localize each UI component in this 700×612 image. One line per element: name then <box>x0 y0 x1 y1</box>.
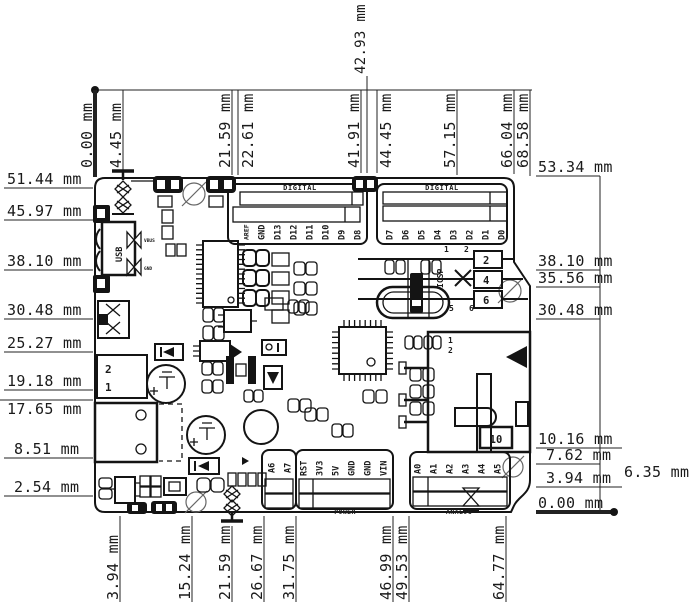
pin-a7: A7 <box>284 463 294 473</box>
round-capacitor <box>244 410 278 444</box>
pin-d3: D3 <box>450 230 460 240</box>
pin-5v: 5V <box>332 466 342 476</box>
dim-left-1: 45.97 mm <box>7 202 82 220</box>
mounting-hole-icon <box>182 182 206 206</box>
pin-d11: D11 <box>306 225 316 240</box>
dim-right-8: 0.00 mm <box>538 494 603 512</box>
dim-top-9: 68.58 mm <box>514 93 532 168</box>
digital-header-right: DIGITAL D7 D6 D5 D4 D3 D2 D1 D0 <box>377 184 508 244</box>
dim-bottom-1: 15.24 mm <box>176 525 194 600</box>
dim-right-1: 38.10 mm <box>538 252 613 270</box>
datum-dot-right <box>610 508 618 516</box>
icsp-box-6: 6 <box>483 295 489 307</box>
pin-d13: D13 <box>274 225 284 240</box>
pin-d0: D0 <box>498 230 508 240</box>
usb-serial-ssop-chip <box>196 241 245 307</box>
icsp-pin-2: 2 <box>464 245 469 254</box>
mounting-hole-icon <box>185 491 207 513</box>
dim-right-7: 3.94 mm <box>546 469 611 487</box>
icsp-box-4: 4 <box>483 275 489 287</box>
pin-rst: RST <box>300 461 310 476</box>
dim-left-0: 51.44 mm <box>7 170 82 188</box>
smd-passives-bottom-left <box>99 473 266 514</box>
pin-d6: D6 <box>402 230 412 240</box>
pin-d8: D8 <box>354 230 364 240</box>
pin-gnd-1: GND <box>348 461 358 476</box>
jack-pin-1: 1 <box>105 381 112 394</box>
dim-right-3: 30.48 mm <box>538 301 613 319</box>
pin-d2: D2 <box>466 230 476 240</box>
pin1-dot-icon <box>228 297 234 303</box>
dim-top-3: 22.61 mm <box>239 93 257 168</box>
dim-bottom-0: 3.94 mm <box>104 535 122 600</box>
dim-bottom-3: 26.67 mm <box>248 525 266 600</box>
right-connector-block: 1 2 10 <box>399 332 530 452</box>
connector-pin-1: 1 <box>448 336 453 345</box>
pin-d9: D9 <box>338 230 348 240</box>
digital-left-label: DIGITAL <box>283 184 317 192</box>
jack-pin-2: 2 <box>105 363 112 376</box>
down-arrow-component-icon <box>264 366 282 389</box>
dim-left-8: 2.54 mm <box>14 478 79 496</box>
usb-shield-arcs <box>96 229 100 271</box>
value-box: 10 <box>480 427 512 448</box>
digital-right-label: DIGITAL <box>425 184 459 192</box>
dimension-group-left: 51.44 mm 45.97 mm 38.10 mm 30.48 mm 25.2… <box>0 170 93 496</box>
pin-d4: D4 <box>434 230 444 240</box>
dim-top-5: 41.91 mm <box>345 93 363 168</box>
gnd-diode-icon: GND <box>127 259 152 275</box>
dim-left-5: 19.18 mm <box>7 372 82 390</box>
power-header: RST 3V3 5V GND GND VIN POWER <box>296 450 393 516</box>
dim-left-6: 17.65 mm <box>7 400 82 418</box>
dimension-group-right: 53.34 mm 38.10 mm 35.56 mm 30.48 mm 10.1… <box>536 158 689 516</box>
dim-right-6: 6.35 mm <box>624 463 689 481</box>
connector-pin-2: 2 <box>448 346 453 355</box>
dim-top-7: 57.15 mm <box>441 93 459 168</box>
usb-pad-label-gnd: GND <box>144 266 152 272</box>
voltage-regulator <box>193 341 242 361</box>
pin-d12: D12 <box>290 225 300 240</box>
pin-3v3: 3V3 <box>316 461 326 476</box>
small-arrow-icon <box>242 457 249 465</box>
power-jack: 2 1 <box>95 355 182 462</box>
vbus-diode-icon: VBUS <box>127 232 155 248</box>
dim-left-3: 30.48 mm <box>7 301 82 319</box>
transformer-icon <box>226 356 256 384</box>
digital-header-left: DIGITAL AREF GND D13 D12 D11 D10 D9 D8 <box>228 184 367 244</box>
pin-d1: D1 <box>482 230 492 240</box>
crystal-oscillator <box>377 258 449 318</box>
dim-right-5: 7.62 mm <box>546 446 611 464</box>
pin-a0: A0 <box>414 464 424 474</box>
diode-1-icon <box>155 344 183 360</box>
aux-analog-header: A6 A7 <box>262 450 296 509</box>
electrolytic-cap-1 <box>147 365 185 403</box>
dim-top-4: 42.93 mm <box>353 4 369 74</box>
pin-gnd-2: GND <box>364 461 374 476</box>
dim-bottom-2: 21.59 mm <box>216 525 234 600</box>
pin-d5: D5 <box>418 230 428 240</box>
connector-value: 10 <box>490 434 503 446</box>
usb-connector: USB VBUS GND <box>93 205 155 293</box>
dimension-group-bottom: 3.94 mm 15.24 mm 21.59 mm 26.67 mm 31.75… <box>104 516 508 602</box>
usb-pad-label-vbus: VBUS <box>144 238 155 244</box>
pin-a6: A6 <box>268 463 278 473</box>
dim-right-2: 35.56 mm <box>538 269 613 287</box>
pin-vin: VIN <box>380 461 390 476</box>
dim-left-4: 25.27 mm <box>7 334 82 352</box>
pin-a4: A4 <box>478 464 488 474</box>
dim-top-6: 44.45 mm <box>377 93 395 168</box>
smd-passives-right <box>405 336 441 415</box>
mounting-hole-icon <box>502 456 524 478</box>
pin-aref: AREF <box>243 224 251 240</box>
triangle-marker-icon <box>506 346 527 368</box>
drawing-canvas: 0.00 mm 4.45 mm 21.59 mm 22.61 mm 42.93 … <box>0 0 700 612</box>
usb-label: USB <box>115 247 125 262</box>
dim-bottom-4: 31.75 mm <box>280 525 298 600</box>
pin-d10: D10 <box>322 225 332 240</box>
pin1-dot-icon <box>367 358 375 366</box>
dim-right-0: 53.34 mm <box>538 158 613 176</box>
pin-a3: A3 <box>462 464 472 474</box>
diode-3-icon <box>262 340 286 355</box>
dim-top-1: 4.45 mm <box>107 103 125 168</box>
pcb-dimension-drawing: 0.00 mm 4.45 mm 21.59 mm 22.61 mm 42.93 … <box>0 0 700 612</box>
dim-top-0: 0.00 mm <box>78 103 96 168</box>
mcu-tqfp-chip <box>332 320 393 381</box>
dim-bottom-7: 64.77 mm <box>490 525 508 600</box>
analog-header: A0 A1 A2 A3 A4 A5 ANALOG <box>410 452 510 516</box>
pin-a2: A2 <box>446 464 456 474</box>
diode-2-icon <box>189 458 219 474</box>
dim-top-2: 21.59 mm <box>216 93 234 168</box>
varistor-box <box>98 301 129 338</box>
fiducial-bottom-icon <box>221 486 243 521</box>
power-header-label: POWER <box>334 508 356 516</box>
dimension-group-top: 0.00 mm 4.45 mm 21.59 mm 22.61 mm 42.93 … <box>78 4 532 177</box>
pin-gnd-top: GND <box>258 225 268 240</box>
dim-bottom-6: 49.53 mm <box>393 525 411 600</box>
dim-left-2: 38.10 mm <box>7 252 82 270</box>
electrolytic-cap-2 <box>187 416 225 454</box>
pin-d7: D7 <box>386 230 396 240</box>
pin-a5: A5 <box>494 464 504 474</box>
pin-a1: A1 <box>430 464 440 474</box>
dim-left-7: 8.51 mm <box>14 440 79 458</box>
icsp-pin-1: 1 <box>444 245 449 254</box>
analog-header-label: ANALOG <box>446 508 472 516</box>
icsp-box-2: 2 <box>483 255 489 267</box>
